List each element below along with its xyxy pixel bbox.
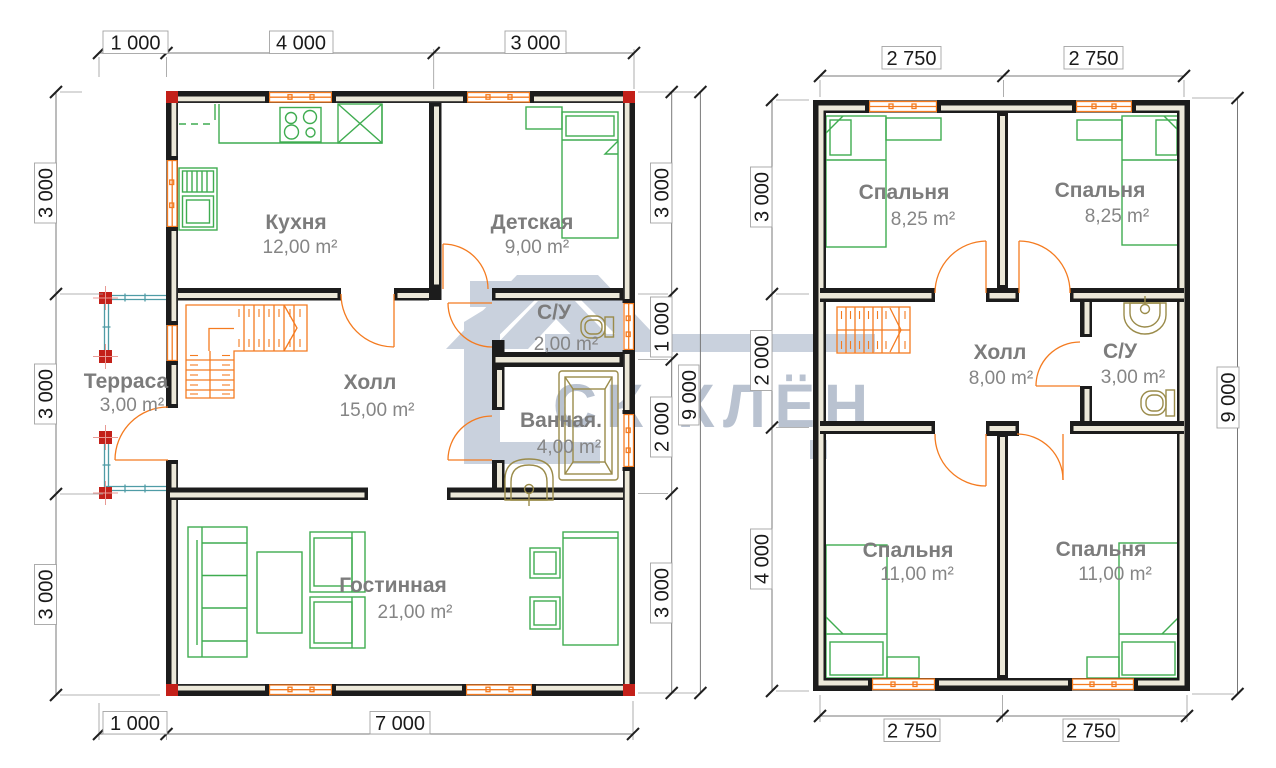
svg-text:3 000: 3 000 xyxy=(36,168,58,218)
svg-text:3,00 m²: 3,00 m² xyxy=(1101,367,1165,388)
svg-text:11,00 m²: 11,00 m² xyxy=(1078,564,1152,585)
svg-text:2 750: 2 750 xyxy=(886,48,936,70)
svg-text:2 750: 2 750 xyxy=(887,721,937,743)
svg-text:3 000: 3 000 xyxy=(36,569,58,619)
svg-text:Кухня: Кухня xyxy=(265,211,326,234)
svg-text:Холл: Холл xyxy=(974,341,1027,364)
svg-text:3 000: 3 000 xyxy=(36,369,58,419)
svg-text:Детская: Детская xyxy=(491,211,574,234)
svg-text:11,00 m²: 11,00 m² xyxy=(880,564,954,585)
svg-text:3 000: 3 000 xyxy=(751,172,773,222)
svg-text:Ванная.: Ванная. xyxy=(520,409,602,432)
svg-text:2 000: 2 000 xyxy=(751,335,773,385)
svg-text:9,00 m²: 9,00 m² xyxy=(505,237,569,258)
svg-text:С/У: С/У xyxy=(537,301,572,324)
svg-text:Спальня: Спальня xyxy=(863,539,954,562)
svg-text:8,25 m²: 8,25 m² xyxy=(891,209,955,230)
svg-text:С/У: С/У xyxy=(1103,340,1138,363)
svg-text:3 000: 3 000 xyxy=(651,568,673,618)
svg-text:3 000: 3 000 xyxy=(510,33,560,55)
svg-text:7 000: 7 000 xyxy=(375,713,425,735)
svg-text:1 000: 1 000 xyxy=(110,33,160,55)
svg-text:2 750: 2 750 xyxy=(1068,48,1118,70)
svg-text:Холл: Холл xyxy=(344,371,397,394)
svg-text:1 000: 1 000 xyxy=(651,302,673,352)
svg-text:2 750: 2 750 xyxy=(1066,721,1116,743)
svg-text:2,00 m²: 2,00 m² xyxy=(534,334,598,355)
svg-text:Терраса: Терраса xyxy=(84,370,169,393)
svg-text:Гостинная: Гостинная xyxy=(339,574,447,597)
svg-text:1 000: 1 000 xyxy=(110,713,160,735)
svg-text:2 000: 2 000 xyxy=(651,402,673,452)
svg-text:12,00 m²: 12,00 m² xyxy=(263,237,338,258)
svg-text:3,00 m²: 3,00 m² xyxy=(100,395,164,416)
svg-text:9 000: 9 000 xyxy=(1218,372,1240,422)
svg-text:9 000: 9 000 xyxy=(679,370,701,420)
svg-text:15,00 m²: 15,00 m² xyxy=(340,400,415,421)
svg-text:21,00 m²: 21,00 m² xyxy=(378,602,453,623)
svg-text:Спальня: Спальня xyxy=(859,181,950,204)
svg-text:3 000: 3 000 xyxy=(651,168,673,218)
svg-text:8,25 m²: 8,25 m² xyxy=(1085,206,1149,227)
svg-text:4 000: 4 000 xyxy=(751,534,773,584)
svg-text:4,00 m²: 4,00 m² xyxy=(537,437,601,458)
svg-text:Спальня: Спальня xyxy=(1055,179,1146,202)
svg-text:8,00 m²: 8,00 m² xyxy=(969,368,1033,389)
svg-text:4 000: 4 000 xyxy=(276,33,326,55)
svg-text:Спальня: Спальня xyxy=(1056,538,1147,561)
